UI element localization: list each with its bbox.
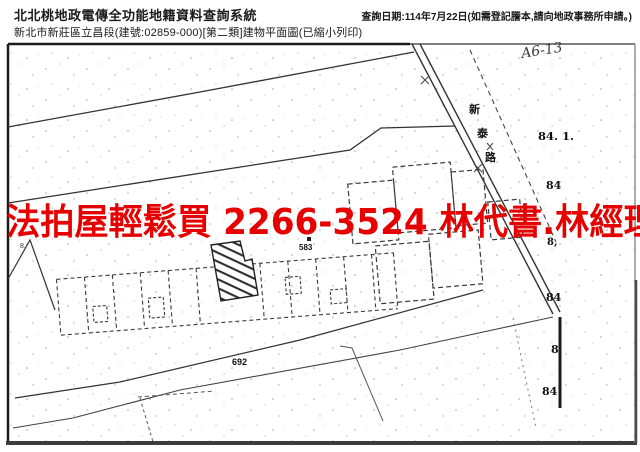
document-subtitle: 新北市新莊區立昌段(建號:02859-000)[第二類]建物平面圖(已縮小列印)	[14, 24, 362, 40]
label-lot-84-1: 84. 1.	[538, 129, 574, 143]
document-header: 北北桃地政電傳全功能地籍資料查詢系統 新北市新莊區立昌段(建號:02859-00…	[0, 0, 640, 42]
road-name-char: 新	[469, 102, 480, 116]
label-lot-84: 84	[542, 385, 558, 398]
ad-overlay: 法拍屋輕鬆買 2266-3524 林代書.林經理	[6, 200, 640, 246]
road-name-char: 泰	[476, 126, 489, 140]
system-title: 北北桃地政電傳全功能地籍資料查詢系統	[14, 5, 257, 24]
label-lot-8: 8	[551, 343, 559, 356]
page: 北北桃地政電傳全功能地籍資料查詢系統 新北市新莊區立昌段(建號:02859-00…	[0, 0, 640, 452]
label-lot-692: 692	[232, 357, 247, 367]
label-lot-84: 84	[546, 291, 562, 304]
road-name-char: 路	[485, 150, 497, 164]
query-date-note: 查詢日期:114年7月22日(如需登記謄本,請向地政事務所申請。)	[361, 8, 632, 23]
label-lot-84: 84	[546, 179, 562, 192]
